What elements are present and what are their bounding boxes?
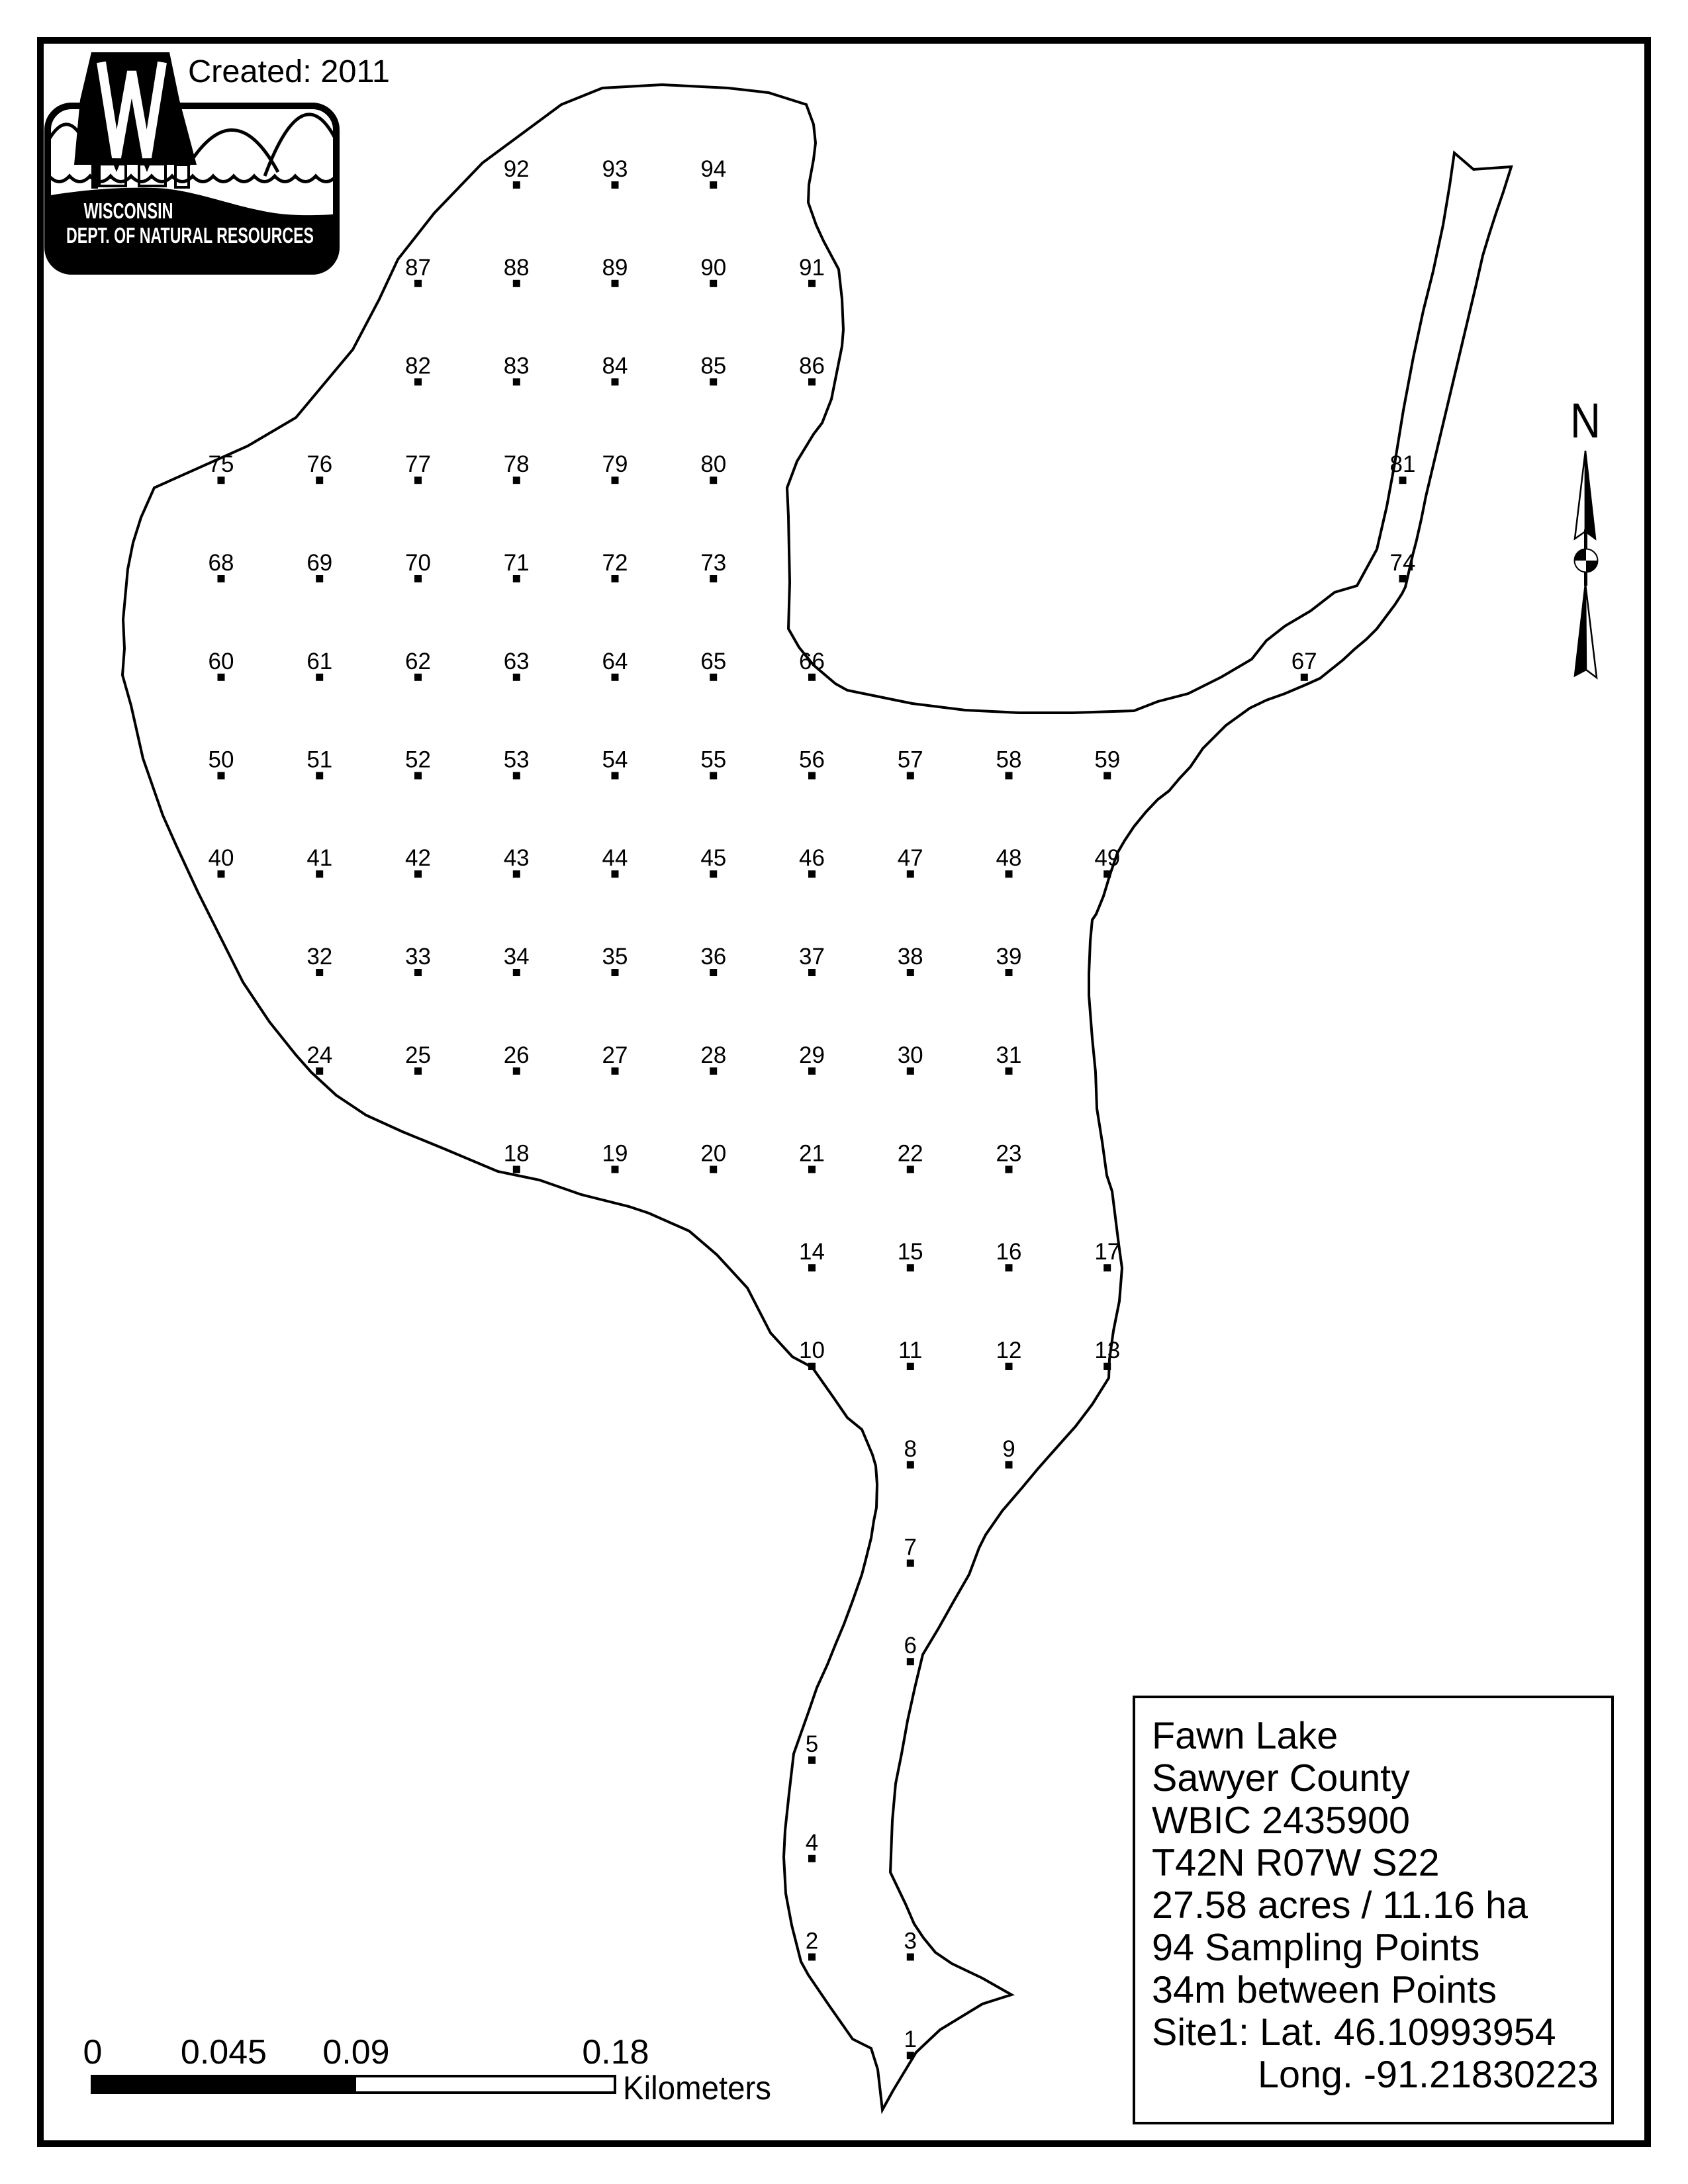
svg-text:89: 89 (602, 255, 628, 281)
svg-text:88: 88 (504, 255, 530, 281)
svg-text:78: 78 (504, 451, 530, 477)
svg-text:91: 91 (799, 255, 825, 281)
svg-text:22: 22 (898, 1141, 923, 1167)
svg-text:38: 38 (898, 944, 923, 970)
svg-text:82: 82 (405, 353, 431, 379)
svg-text:68: 68 (209, 550, 234, 576)
svg-text:77: 77 (405, 451, 431, 477)
svg-text:3: 3 (904, 1929, 916, 1954)
svg-text:0: 0 (83, 2033, 103, 2071)
svg-text:51: 51 (306, 747, 332, 773)
svg-text:13: 13 (1094, 1338, 1120, 1363)
svg-text:86: 86 (799, 353, 825, 379)
svg-text:29: 29 (799, 1042, 825, 1068)
svg-text:32: 32 (306, 944, 332, 970)
svg-text:34: 34 (504, 944, 530, 970)
svg-text:52: 52 (405, 747, 431, 773)
svg-text:40: 40 (209, 845, 234, 871)
svg-text:50: 50 (209, 747, 234, 773)
svg-text:81: 81 (1390, 451, 1416, 477)
svg-text:N: N (1570, 393, 1601, 448)
svg-text:94 Sampling Points: 94 Sampling Points (1152, 1927, 1479, 1969)
svg-text:9: 9 (1002, 1436, 1015, 1462)
svg-text:76: 76 (306, 451, 332, 477)
svg-text:36: 36 (700, 944, 726, 970)
svg-text:49: 49 (1094, 845, 1120, 871)
svg-text:85: 85 (700, 353, 726, 379)
svg-text:60: 60 (209, 649, 234, 674)
svg-text:72: 72 (602, 550, 628, 576)
svg-text:0.09: 0.09 (322, 2033, 389, 2071)
svg-text:83: 83 (504, 353, 530, 379)
svg-text:42: 42 (405, 845, 431, 871)
svg-text:66: 66 (799, 649, 825, 674)
svg-text:14: 14 (799, 1239, 825, 1265)
svg-text:2: 2 (806, 1929, 818, 1954)
svg-text:8: 8 (904, 1436, 916, 1462)
svg-text:63: 63 (504, 649, 530, 674)
svg-text:WISCONSIN: WISCONSIN (84, 199, 173, 223)
svg-text:35: 35 (602, 944, 628, 970)
svg-text:33: 33 (405, 944, 431, 970)
svg-text:10: 10 (799, 1338, 825, 1363)
svg-text:15: 15 (898, 1239, 923, 1265)
svg-text:12: 12 (996, 1338, 1022, 1363)
svg-text:Long. -91.21830223: Long. -91.21830223 (1258, 2054, 1599, 2096)
svg-text:39: 39 (996, 944, 1022, 970)
svg-text:Site1: Lat. 46.10993954: Site1: Lat. 46.10993954 (1152, 2011, 1556, 2054)
svg-text:69: 69 (306, 550, 332, 576)
svg-text:75: 75 (209, 451, 234, 477)
svg-text:79: 79 (602, 451, 628, 477)
svg-text:92: 92 (504, 156, 530, 182)
svg-text:20: 20 (700, 1141, 726, 1167)
svg-text:DEPT. OF NATURAL RESOURCES: DEPT. OF NATURAL RESOURCES (66, 223, 314, 248)
svg-text:59: 59 (1094, 747, 1120, 773)
svg-text:93: 93 (602, 156, 628, 182)
svg-text:19: 19 (602, 1141, 628, 1167)
svg-text:45: 45 (700, 845, 726, 871)
svg-text:73: 73 (700, 550, 726, 576)
svg-text:28: 28 (700, 1042, 726, 1068)
svg-text:57: 57 (898, 747, 923, 773)
svg-text:31: 31 (996, 1042, 1022, 1068)
svg-text:46: 46 (799, 845, 825, 871)
svg-text:1: 1 (904, 2026, 916, 2052)
svg-text:27: 27 (602, 1042, 628, 1068)
svg-text:43: 43 (504, 845, 530, 871)
svg-text:Sawyer County: Sawyer County (1152, 1757, 1410, 1799)
svg-text:23: 23 (996, 1141, 1022, 1167)
svg-text:6: 6 (904, 1633, 916, 1659)
svg-text:16: 16 (996, 1239, 1022, 1265)
svg-text:53: 53 (504, 747, 530, 773)
svg-text:26: 26 (504, 1042, 530, 1068)
svg-text:61: 61 (306, 649, 332, 674)
svg-text:84: 84 (602, 353, 628, 379)
svg-text:25: 25 (405, 1042, 431, 1068)
svg-text:24: 24 (306, 1042, 332, 1068)
svg-text:94: 94 (700, 156, 726, 182)
svg-text:0.18: 0.18 (582, 2033, 649, 2071)
svg-text:0.045: 0.045 (181, 2033, 267, 2071)
svg-text:Fawn Lake: Fawn Lake (1152, 1715, 1338, 1757)
svg-text:58: 58 (996, 747, 1022, 773)
svg-text:18: 18 (504, 1141, 530, 1167)
svg-text:34m between Points: 34m between Points (1152, 1969, 1497, 2011)
svg-text:7: 7 (904, 1535, 916, 1561)
svg-text:44: 44 (602, 845, 628, 871)
svg-text:T42N R07W S22: T42N R07W S22 (1152, 1842, 1440, 1884)
svg-text:87: 87 (405, 255, 431, 281)
svg-text:37: 37 (799, 944, 825, 970)
svg-text:54: 54 (602, 747, 628, 773)
svg-text:80: 80 (700, 451, 726, 477)
svg-text:WBIC 2435900: WBIC 2435900 (1152, 1799, 1410, 1842)
svg-text:47: 47 (898, 845, 923, 871)
svg-text:21: 21 (799, 1141, 825, 1167)
svg-text:71: 71 (504, 550, 530, 576)
svg-text:48: 48 (996, 845, 1022, 871)
svg-text:17: 17 (1094, 1239, 1120, 1265)
svg-text:70: 70 (405, 550, 431, 576)
svg-text:67: 67 (1291, 649, 1317, 674)
svg-text:55: 55 (700, 747, 726, 773)
svg-text:30: 30 (898, 1042, 923, 1068)
svg-text:65: 65 (700, 649, 726, 674)
svg-text:11: 11 (898, 1338, 922, 1363)
svg-text:Created: 2011: Created: 2011 (188, 54, 390, 89)
svg-text:41: 41 (306, 845, 332, 871)
svg-text:Kilometers: Kilometers (623, 2070, 771, 2107)
svg-text:64: 64 (602, 649, 628, 674)
svg-text:56: 56 (799, 747, 825, 773)
svg-text:4: 4 (806, 1830, 818, 1856)
svg-text:27.58 acres / 11.16 ha: 27.58 acres / 11.16 ha (1152, 1884, 1528, 1927)
svg-text:74: 74 (1390, 550, 1416, 576)
svg-text:90: 90 (700, 255, 726, 281)
svg-text:5: 5 (806, 1731, 818, 1757)
svg-text:62: 62 (405, 649, 431, 674)
